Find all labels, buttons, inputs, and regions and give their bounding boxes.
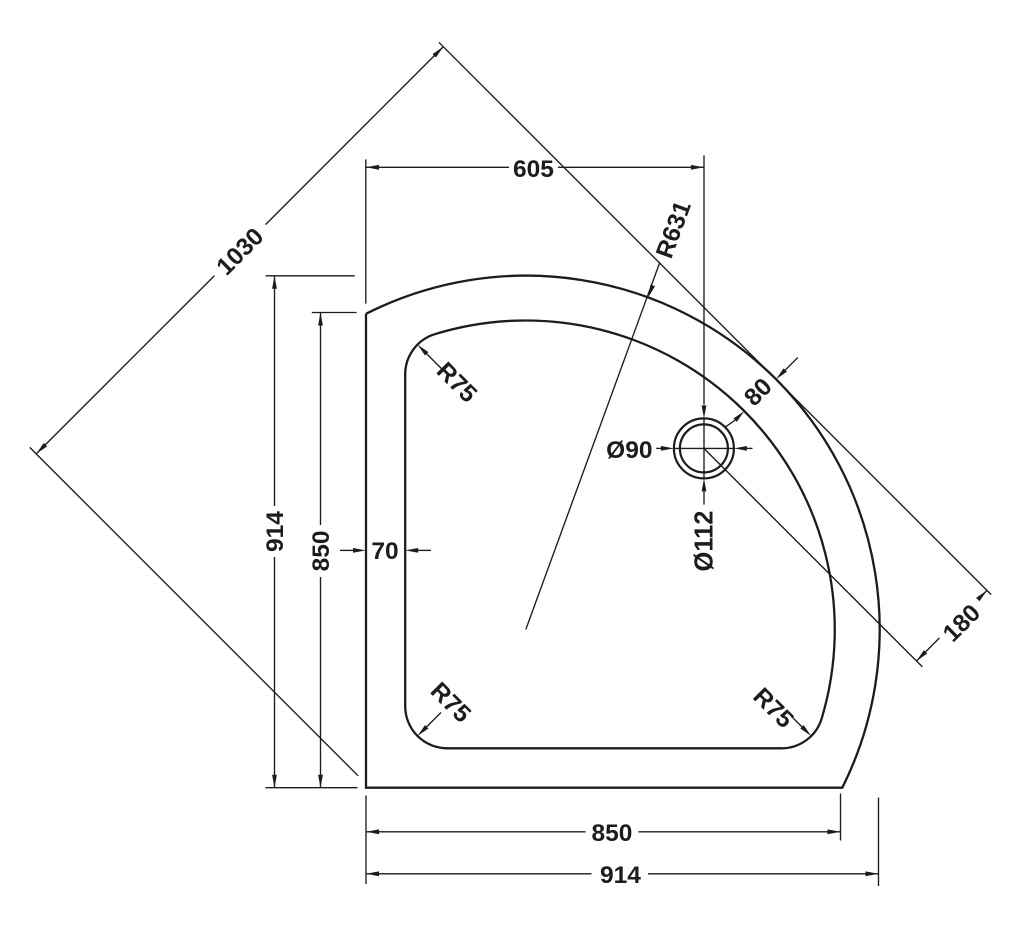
svg-text:R631: R631 — [651, 198, 697, 262]
svg-text:605: 605 — [513, 156, 554, 183]
svg-text:914: 914 — [600, 862, 641, 889]
svg-text:80: 80 — [739, 373, 777, 411]
svg-text:850: 850 — [308, 530, 335, 571]
svg-text:914: 914 — [262, 511, 289, 552]
svg-text:R75: R75 — [747, 683, 798, 734]
svg-text:1030: 1030 — [212, 223, 270, 281]
svg-text:180: 180 — [938, 599, 986, 647]
svg-text:70: 70 — [371, 538, 398, 565]
svg-text:Ø90: Ø90 — [606, 437, 652, 464]
svg-text:850: 850 — [591, 820, 632, 847]
svg-text:Ø112: Ø112 — [691, 511, 719, 572]
